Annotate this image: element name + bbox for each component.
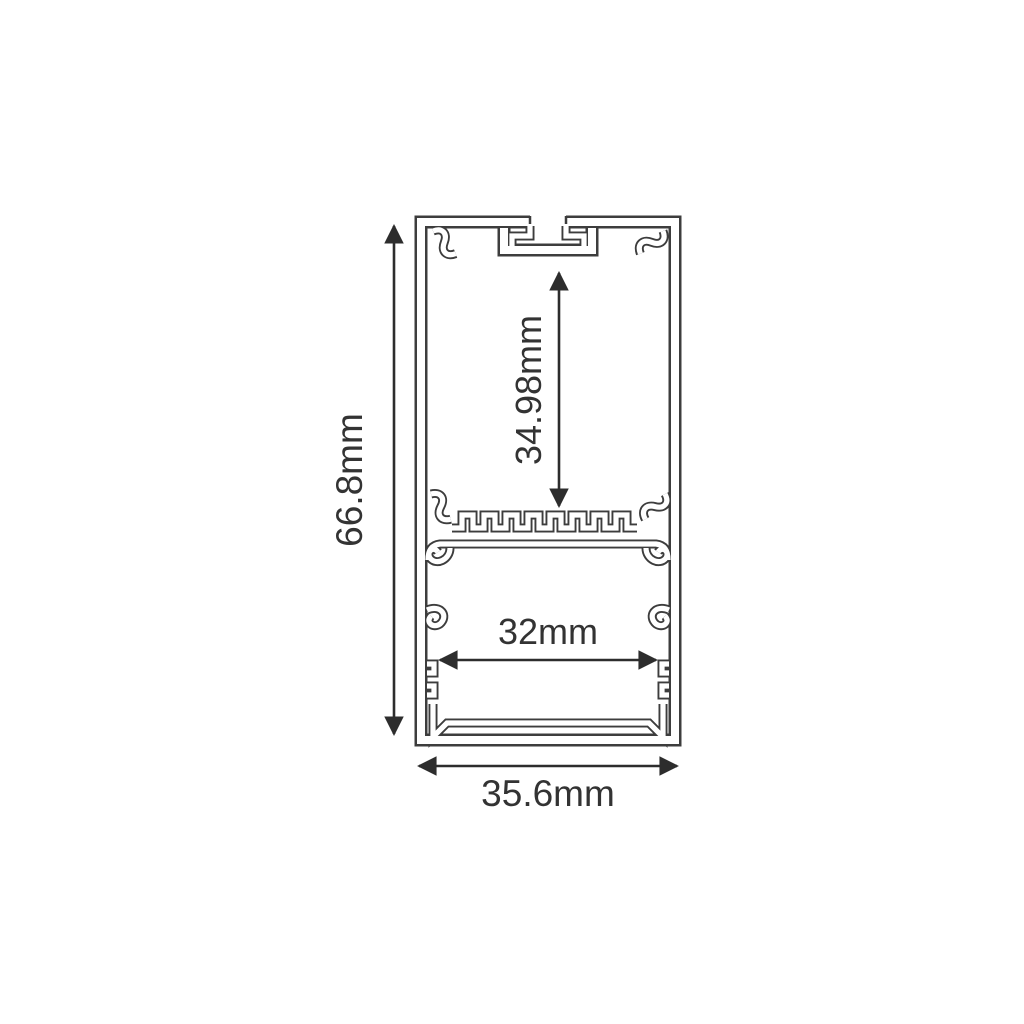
inner-width-label: 32mm	[498, 611, 598, 652]
outer-shell	[421, 222, 675, 740]
profile-walls-white-pass	[421, 222, 675, 740]
inner-height-label: 34.98mm	[508, 315, 549, 465]
led-profile-cross-section-drawing: 66.8mm 34.98mm 32mm 35.6mm	[0, 0, 1024, 1024]
outer-contour	[421, 222, 675, 740]
slot-mouth-edges	[530, 216, 566, 224]
profile-walls-dark-pass	[421, 222, 675, 740]
overall-height-label: 66.8mm	[329, 413, 370, 547]
technical-drawing-page: 66.8mm 34.98mm 32mm 35.6mm	[0, 0, 1024, 1024]
overall-width-label: 35.6mm	[481, 773, 615, 814]
